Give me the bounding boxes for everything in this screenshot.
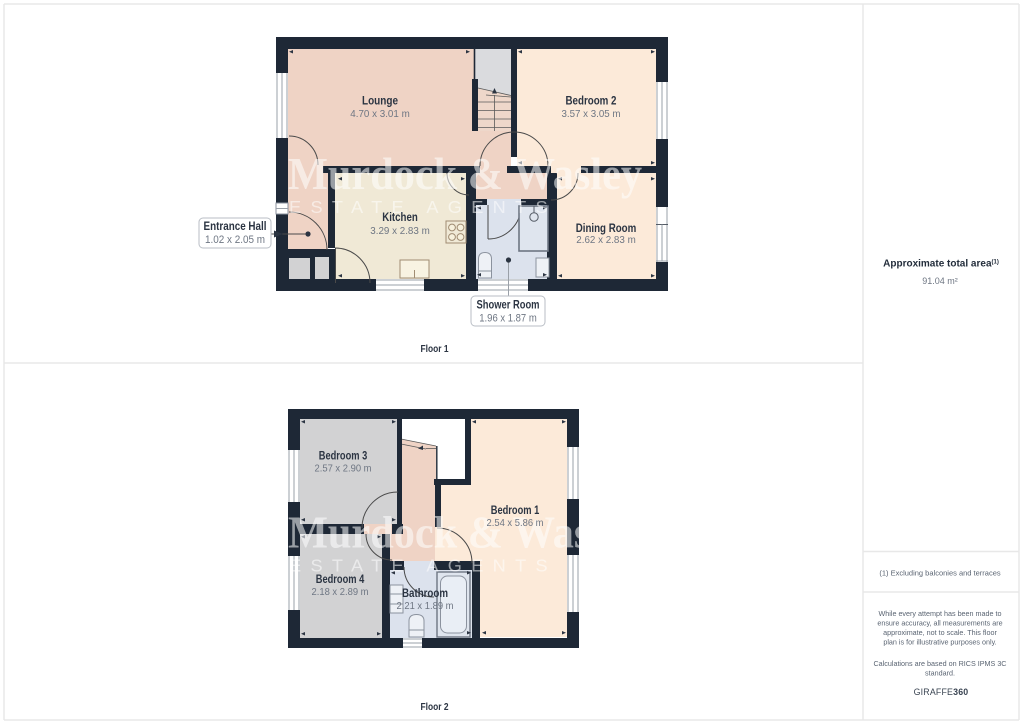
- svg-text:Floor 1: Floor 1: [421, 344, 449, 355]
- svg-text:Murdock & Wasley: Murdock & Wasley: [288, 507, 642, 558]
- svg-text:1.96 x 1.87 m: 1.96 x 1.87 m: [479, 313, 537, 325]
- svg-text:Bathroom: Bathroom: [402, 588, 448, 600]
- svg-text:ESTATE AGENTS: ESTATE AGENTS: [289, 197, 557, 217]
- svg-text:2.62 x 2.83 m: 2.62 x 2.83 m: [576, 234, 636, 246]
- svg-text:2.54 x 5.86 m: 2.54 x 5.86 m: [487, 517, 544, 529]
- svg-text:plan is for illustrative purpo: plan is for illustrative purposes only.: [883, 638, 996, 647]
- svg-text:Kitchen: Kitchen: [382, 212, 418, 224]
- svg-text:Shower Room: Shower Room: [477, 300, 540, 312]
- svg-text:Murdock & Wasley: Murdock & Wasley: [288, 148, 642, 199]
- svg-text:Floor 2: Floor 2: [421, 702, 449, 713]
- svg-text:standard.: standard.: [925, 669, 955, 678]
- svg-text:1.02 x 2.05 m: 1.02 x 2.05 m: [205, 234, 265, 246]
- svg-text:2.57 x 2.90 m: 2.57 x 2.90 m: [315, 463, 372, 475]
- svg-text:91.04 m²: 91.04 m²: [922, 276, 958, 286]
- svg-text:Bedroom 3: Bedroom 3: [319, 451, 368, 463]
- svg-text:Bedroom 1: Bedroom 1: [491, 505, 540, 517]
- svg-text:Approximate total area(1): Approximate total area(1): [883, 259, 999, 270]
- svg-text:GIRAFFE360: GIRAFFE360: [914, 687, 969, 697]
- svg-text:2.18 x 2.89 m: 2.18 x 2.89 m: [312, 586, 369, 598]
- svg-text:While every attempt has been m: While every attempt has been made to: [878, 609, 1001, 618]
- svg-text:Bedroom 4: Bedroom 4: [316, 574, 365, 586]
- svg-text:4.70 x 3.01 m: 4.70 x 3.01 m: [350, 108, 410, 120]
- svg-text:Dining Room: Dining Room: [576, 223, 637, 235]
- svg-text:2.21 x 1.89 m: 2.21 x 1.89 m: [397, 600, 454, 612]
- svg-text:Calculations are based on RICS: Calculations are based on RICS IPMS 3C: [873, 659, 1006, 668]
- svg-text:approximate, not to scale. Thi: approximate, not to scale. This floor: [883, 628, 997, 637]
- svg-text:ensure accuracy, all measureme: ensure accuracy, all measurements are: [877, 619, 1002, 628]
- svg-text:ESTATE AGENTS: ESTATE AGENTS: [289, 556, 557, 576]
- svg-text:3.57 x 3.05 m: 3.57 x 3.05 m: [562, 108, 621, 120]
- svg-text:3.29 x 2.83 m: 3.29 x 2.83 m: [370, 225, 430, 237]
- svg-text:(1) Excluding balconies and te: (1) Excluding balconies and terraces: [879, 569, 1001, 578]
- svg-text:Lounge: Lounge: [362, 96, 398, 108]
- svg-text:Entrance Hall: Entrance Hall: [204, 221, 267, 233]
- svg-text:Bedroom 2: Bedroom 2: [566, 96, 617, 108]
